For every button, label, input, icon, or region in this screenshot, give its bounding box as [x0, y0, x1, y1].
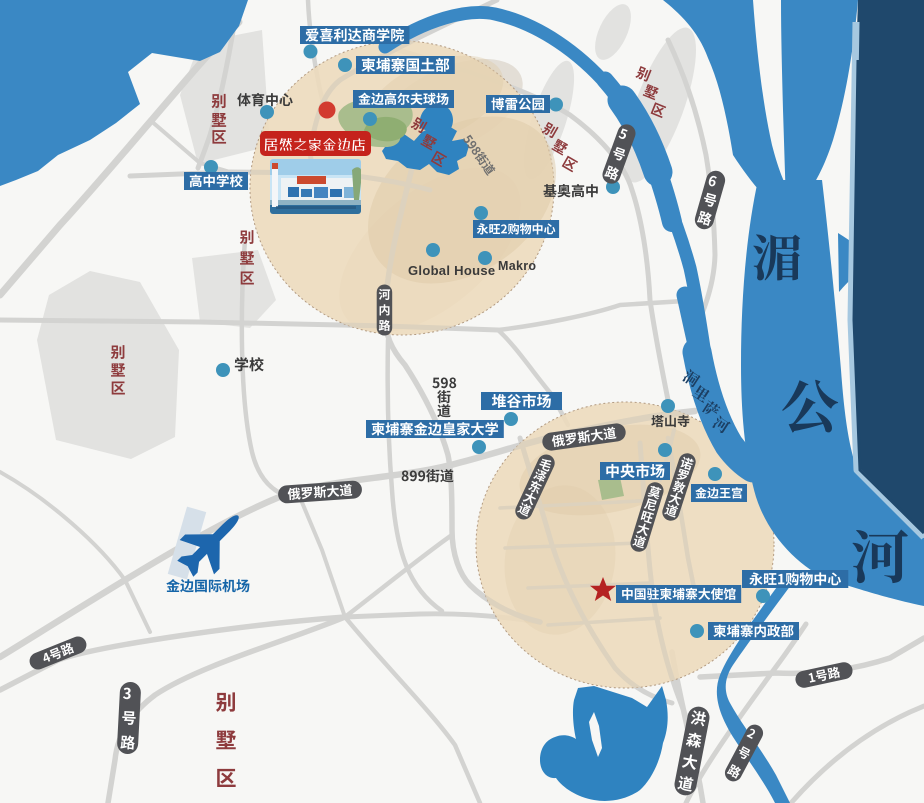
svg-text:Global House: Global House	[408, 263, 495, 278]
svg-text:Makro: Makro	[498, 259, 536, 273]
